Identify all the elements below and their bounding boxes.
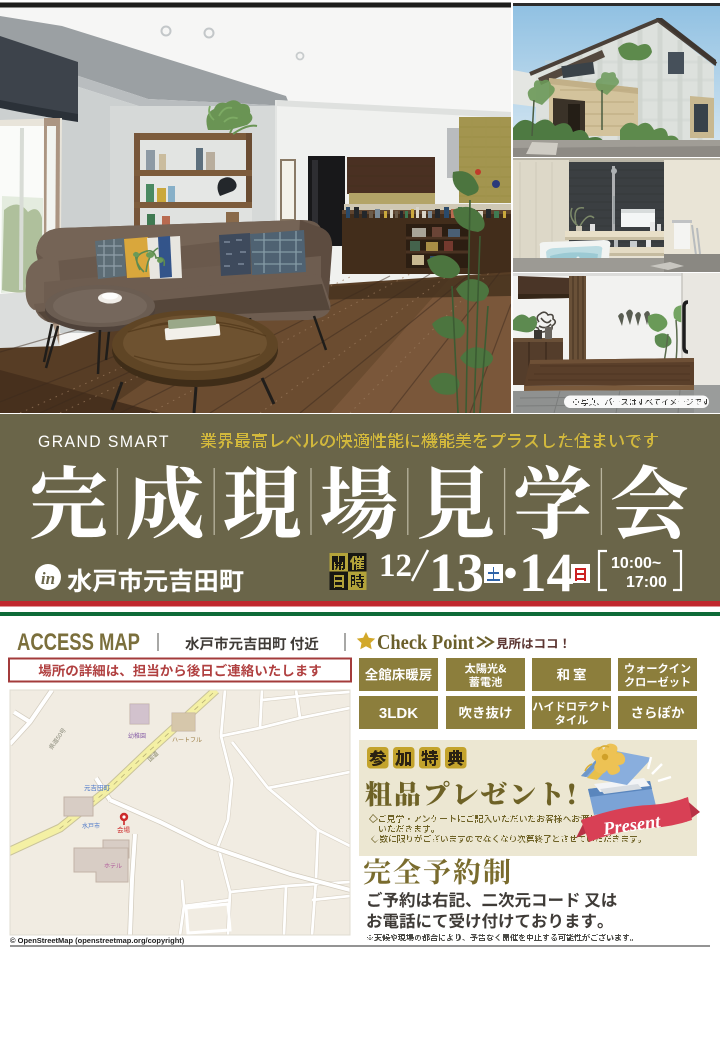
- svg-text:14: 14: [519, 542, 574, 603]
- svg-text:GRAND SMART: GRAND SMART: [38, 433, 170, 451]
- svg-text:10:00~: 10:00~: [611, 555, 661, 572]
- svg-text:12: 12: [379, 548, 412, 584]
- svg-text:3LDK: 3LDK: [379, 705, 418, 722]
- svg-text:17:00: 17:00: [626, 574, 667, 591]
- svg-text:ACCESS MAP: ACCESS MAP: [17, 629, 140, 656]
- svg-text:13: 13: [429, 542, 484, 603]
- svg-text:© OpenStreetMap (openstreetmap: © OpenStreetMap (openstreetmap.org/copyr…: [10, 936, 185, 945]
- svg-text:幼稚園: 幼稚園: [128, 732, 146, 740]
- svg-text:元吉田町: 元吉田町: [84, 784, 111, 792]
- svg-text:水戸市: 水戸市: [82, 822, 100, 830]
- svg-text:ハートフル: ハートフル: [172, 737, 202, 744]
- svg-text:Check Point: Check Point: [377, 630, 474, 654]
- svg-text:ホテル: ホテル: [104, 863, 122, 870]
- svg-text:in: in: [41, 569, 55, 588]
- svg-text:会場: 会場: [117, 825, 131, 834]
